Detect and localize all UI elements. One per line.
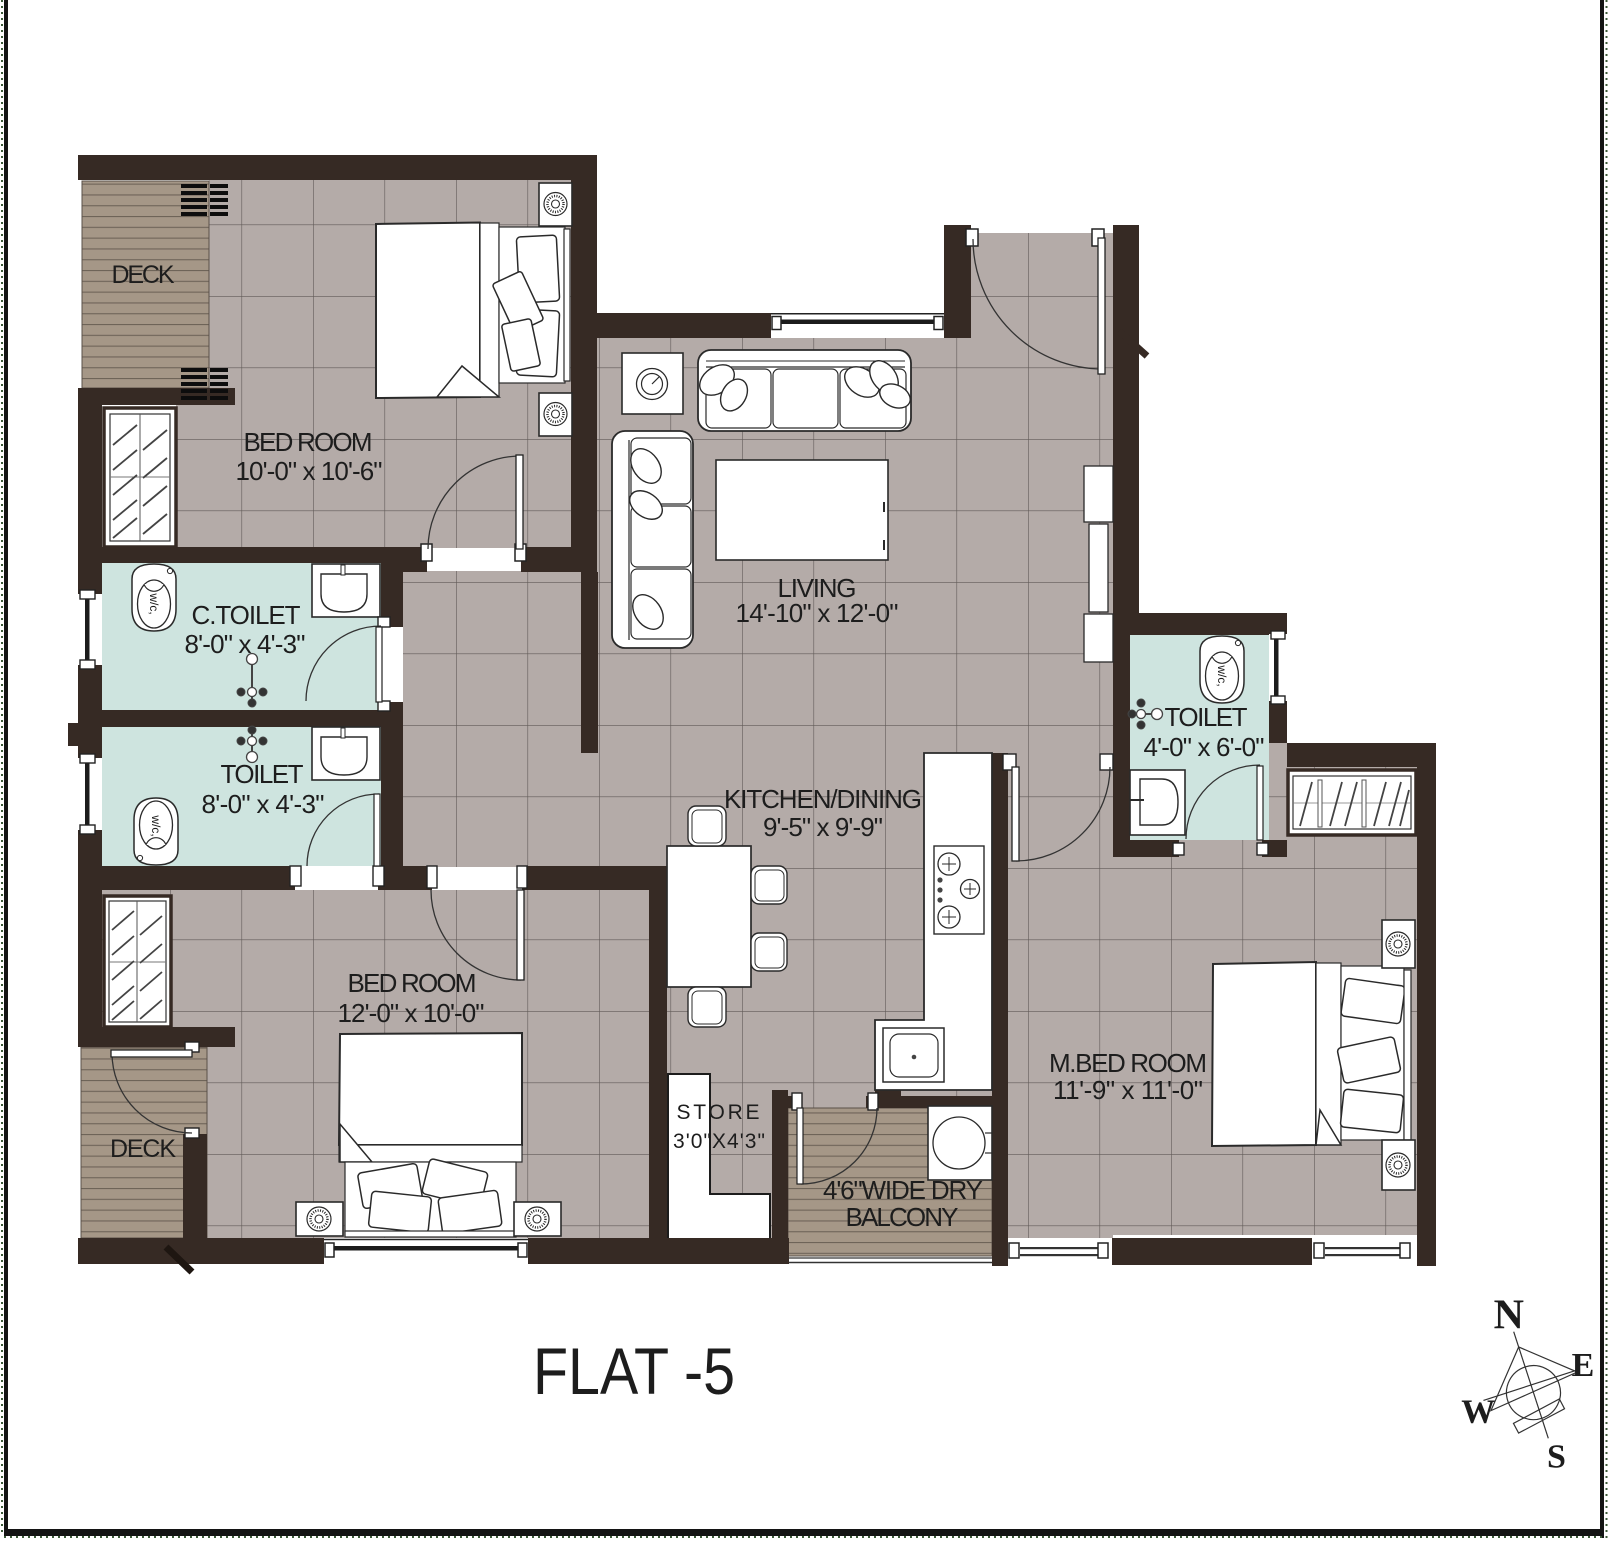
svg-text:BALCONY: BALCONY [846,1202,959,1232]
svg-text:BED ROOM: BED ROOM [244,427,373,457]
svg-text:W: W [1461,1394,1495,1431]
svg-text:TOILET: TOILET [1165,702,1248,732]
svg-text:w/c,: w/c, [149,814,163,836]
svg-text:STORE: STORE [677,1101,760,1124]
svg-text:E: E [1572,1347,1595,1384]
svg-text:w/c,: w/c, [1215,664,1229,686]
svg-text:BED ROOM: BED ROOM [348,968,477,998]
svg-text:14'-10" x 12'-0": 14'-10" x 12'-0" [736,598,899,628]
svg-text:11'-9" x 11'-0": 11'-9" x 11'-0" [1053,1075,1203,1105]
svg-text:N: N [1494,1293,1524,1339]
svg-text:8'-0" x 4'-3": 8'-0" x 4'-3" [202,789,325,819]
svg-text:FLAT -5: FLAT -5 [533,1334,735,1408]
svg-text:4'6"WIDE DRY: 4'6"WIDE DRY [823,1175,983,1205]
svg-text:TOILET: TOILET [221,759,304,789]
svg-text:w/c,: w/c, [147,592,161,614]
svg-text:KITCHEN/DINING: KITCHEN/DINING [724,784,922,814]
svg-text:M.BED ROOM: M.BED ROOM [1049,1048,1207,1078]
svg-text:9'-5" x 9'-9": 9'-5" x 9'-9" [763,812,883,842]
svg-text:S: S [1547,1438,1566,1475]
svg-text:4'-0" x 6'-0": 4'-0" x 6'-0" [1144,732,1265,762]
svg-text:DECK: DECK [112,261,175,289]
svg-text:3'0"X4'3": 3'0"X4'3" [673,1130,765,1153]
svg-text:DECK: DECK [110,1135,176,1163]
svg-text:8'-0" x 4'-3": 8'-0" x 4'-3" [185,629,306,659]
svg-text:10'-0" x 10'-6": 10'-0" x 10'-6" [236,456,383,486]
svg-text:C.TOILET: C.TOILET [192,600,301,630]
svg-text:12'-0" x 10'-0": 12'-0" x 10'-0" [338,998,485,1028]
